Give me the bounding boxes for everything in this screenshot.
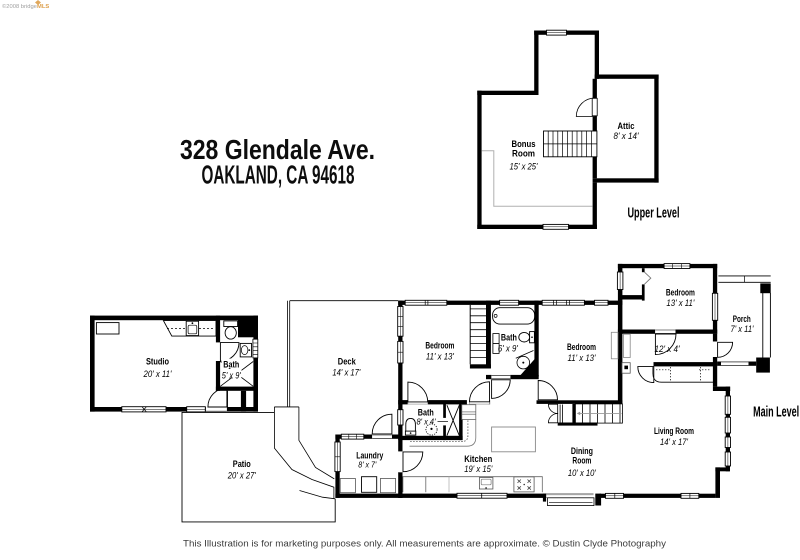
svg-text:OAKLAND, CA 94618: OAKLAND, CA 94618	[202, 162, 355, 190]
svg-text:Main Level: Main Level	[753, 405, 799, 421]
svg-text:Patio: Patio	[233, 459, 251, 470]
svg-text:13' x 11': 13' x 11'	[666, 298, 694, 308]
svg-text:Room: Room	[572, 455, 591, 466]
svg-text:5' x 9': 5' x 9'	[222, 370, 241, 380]
svg-text:This Illustration is for marke: This Illustration is for marketing purpo…	[183, 539, 666, 550]
svg-text:12' x 4': 12' x 4'	[655, 344, 680, 354]
svg-text:8' x 4': 8' x 4'	[417, 417, 436, 427]
svg-text:Bedroom: Bedroom	[567, 342, 596, 353]
svg-text:©2008 bridge: ©2008 bridge	[2, 3, 37, 10]
svg-text:328 Glendale Ave.: 328 Glendale Ave.	[180, 134, 375, 165]
svg-text:20' x 11': 20' x 11'	[143, 369, 172, 379]
svg-text:Bedroom: Bedroom	[666, 288, 695, 299]
svg-text:Bath: Bath	[501, 333, 517, 344]
svg-text:11' x 13': 11' x 13'	[568, 353, 596, 363]
svg-text:Living Room: Living Room	[654, 426, 694, 437]
svg-text:20' x 27': 20' x 27'	[227, 471, 256, 481]
svg-text:15' x 25': 15' x 25'	[510, 162, 538, 172]
svg-text:14' x 17': 14' x 17'	[332, 367, 360, 377]
svg-text:19' x 15': 19' x 15'	[464, 464, 492, 474]
svg-text:Bedroom: Bedroom	[425, 340, 454, 351]
svg-text:Studio: Studio	[146, 356, 169, 367]
svg-text:MLS: MLS	[37, 4, 49, 10]
svg-text:11' x 13': 11' x 13'	[426, 351, 454, 361]
svg-text:8' x 14': 8' x 14'	[614, 131, 639, 141]
svg-text:Deck: Deck	[338, 357, 357, 368]
svg-text:Bath: Bath	[223, 359, 239, 370]
svg-text:8' x 7': 8' x 7'	[358, 460, 376, 470]
svg-text:10' x 10': 10' x 10'	[568, 468, 596, 478]
svg-text:Room: Room	[512, 148, 535, 159]
svg-text:6' x 9': 6' x 9'	[498, 344, 518, 354]
svg-text:14' x 17': 14' x 17'	[660, 437, 688, 447]
svg-text:Upper Level: Upper Level	[628, 206, 680, 222]
svg-text:7' x 11': 7' x 11'	[731, 324, 754, 334]
